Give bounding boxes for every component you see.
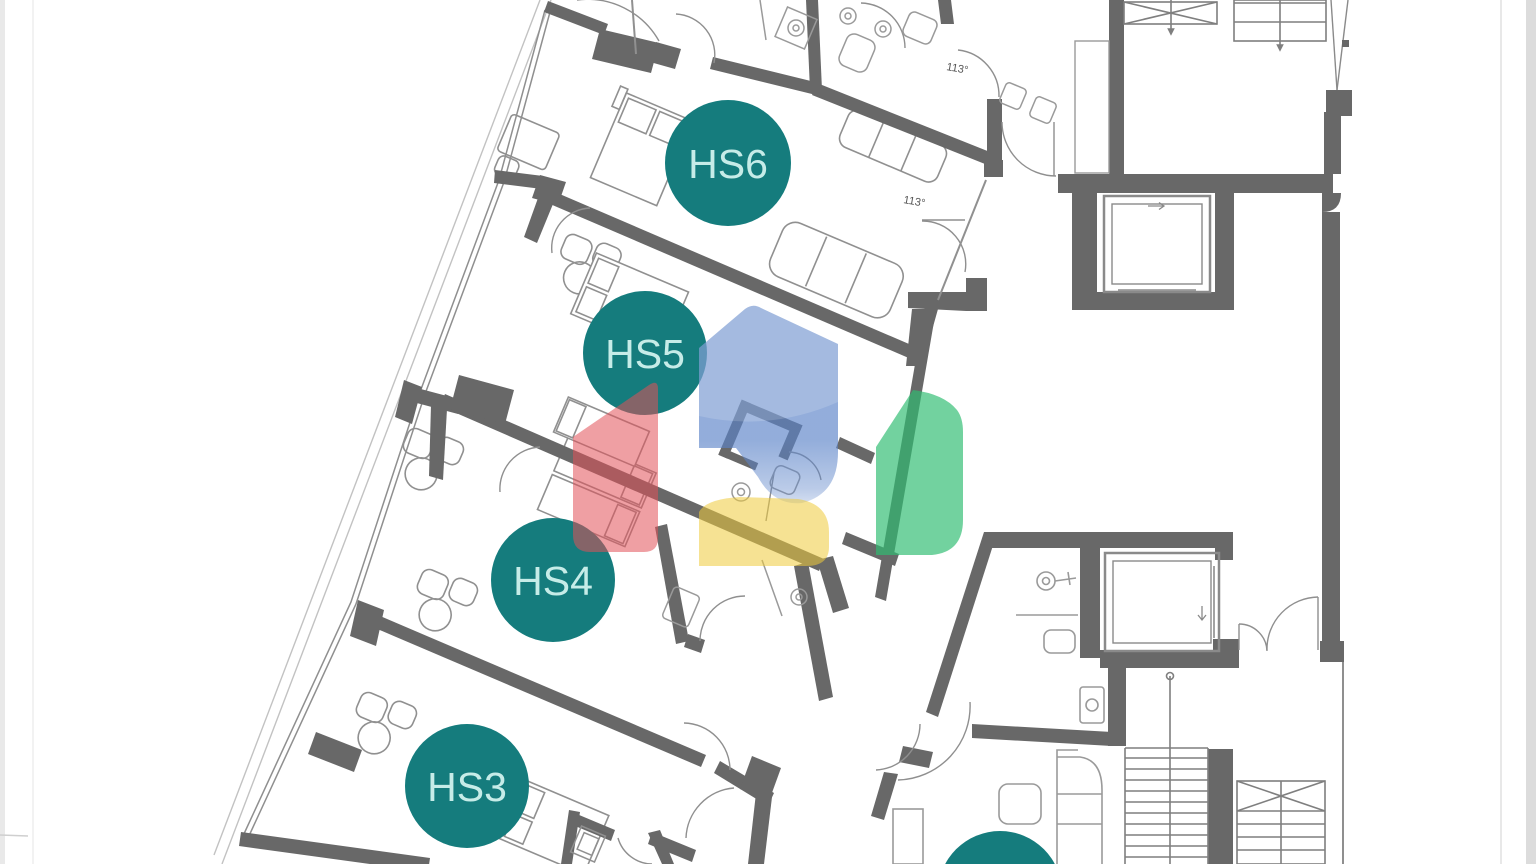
- svg-text:HS3: HS3: [427, 764, 507, 810]
- svg-text:HS4: HS4: [513, 558, 593, 604]
- svg-text:HS6: HS6: [688, 141, 768, 187]
- svg-text:HS5: HS5: [605, 331, 685, 377]
